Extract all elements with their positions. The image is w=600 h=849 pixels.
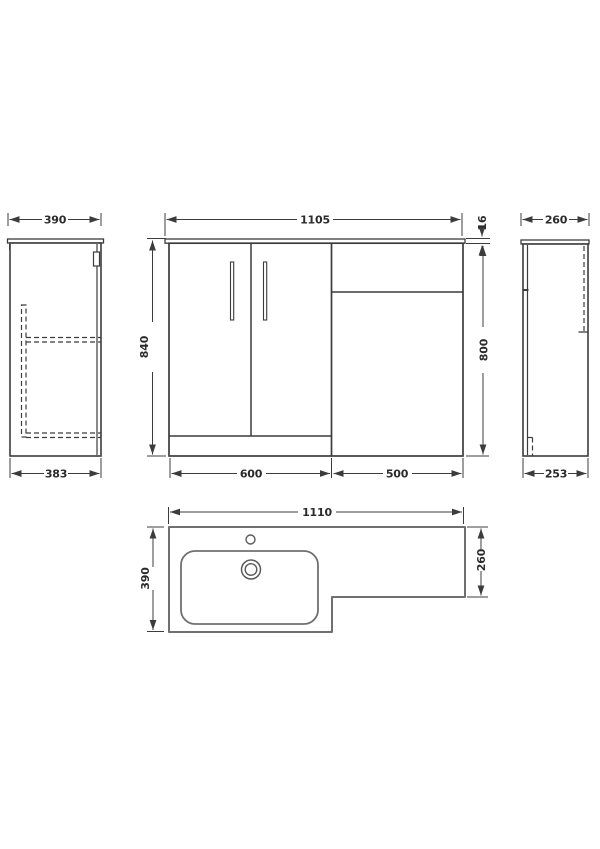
dim-left-side-width-label: 390 [44, 214, 67, 227]
dim-front-width-label: 1105 [300, 214, 330, 227]
left-cabinet-outline [10, 243, 101, 456]
dim-plan-depth: 390 [139, 527, 164, 632]
dim-wc-width-label: 500 [386, 468, 409, 481]
dim-vanity-width: 600 500 [170, 458, 463, 481]
dim-unit-height-label: 800 [478, 338, 491, 361]
dim-front-width: 1105 [165, 213, 462, 236]
plan-view: 1110 390 260 [139, 506, 488, 632]
dim-right-side-width-label: 260 [545, 214, 568, 227]
dim-plan-width-label: 1110 [302, 506, 332, 519]
door-handle-left [231, 262, 234, 320]
dim-plan-wc-depth-label: 260 [475, 548, 488, 571]
left-side-view: 390 383 [8, 213, 104, 481]
right-side-view: 260 253 [521, 213, 589, 481]
technical-drawing: 390 383 [0, 0, 600, 849]
dim-vanity-width-label: 600 [240, 468, 263, 481]
dim-worktop-thickness-label: 16 [476, 215, 489, 230]
door-handle-right [264, 262, 267, 320]
dim-front-height-label: 840 [138, 335, 151, 358]
drawing-canvas: 390 383 [0, 0, 600, 849]
dim-right-side-depth-label: 253 [545, 468, 567, 481]
dim-worktop-thickness: 16 [466, 215, 490, 253]
dim-left-side-depth-label: 383 [45, 468, 67, 481]
left-handle-profile [94, 252, 100, 266]
dim-unit-height: 800 [466, 246, 491, 456]
dim-right-side-width: 260 [521, 213, 589, 227]
dim-right-side-depth: 253 [523, 458, 588, 481]
dim-left-side-depth: 383 [10, 458, 101, 481]
front-cabinet-outline [169, 243, 463, 456]
front-view: 1105 16 840 800 [138, 213, 491, 481]
dim-plan-wc-depth: 260 [467, 527, 488, 597]
dim-plan-width: 1110 [169, 506, 464, 524]
basin-bowl [181, 551, 318, 624]
dim-left-side-width: 390 [8, 213, 101, 227]
right-cabinet-outline [523, 244, 588, 456]
dim-front-height: 840 [138, 239, 166, 457]
dim-plan-depth-label: 390 [139, 567, 152, 590]
